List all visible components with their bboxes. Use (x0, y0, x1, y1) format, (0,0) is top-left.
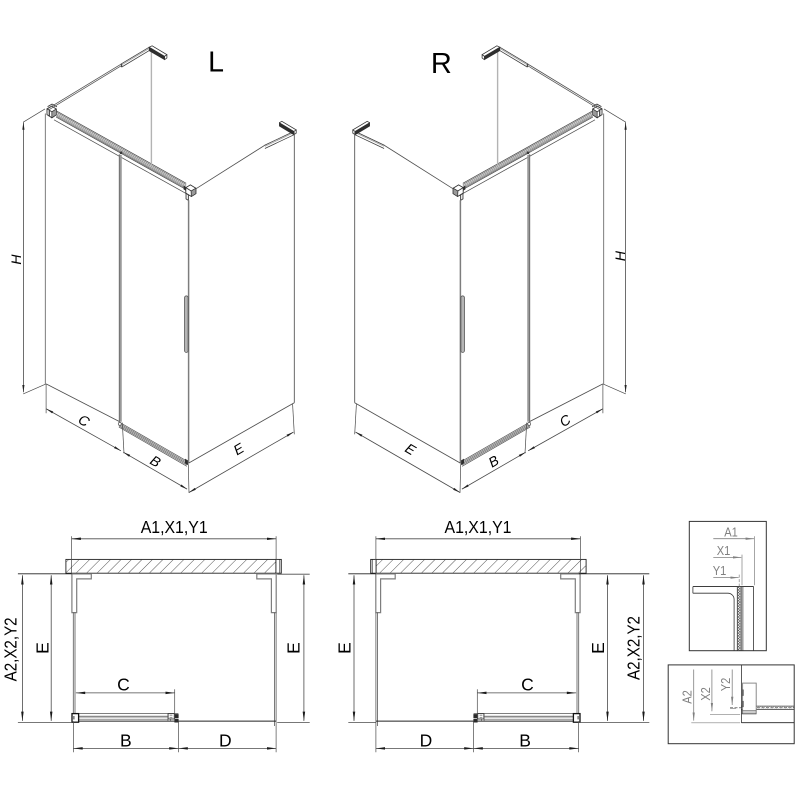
svg-text:C: C (117, 675, 130, 695)
svg-text:X2: X2 (699, 687, 713, 701)
svg-text:A1,X1,Y1: A1,X1,Y1 (445, 517, 512, 537)
svg-text:H: H (612, 250, 628, 261)
svg-text:E: E (284, 642, 304, 654)
svg-text:B: B (519, 731, 531, 751)
svg-text:E: E (32, 642, 52, 654)
svg-text:A2: A2 (681, 690, 695, 704)
svg-text:X1: X1 (717, 544, 731, 558)
svg-text:A1: A1 (724, 526, 738, 540)
svg-text:L: L (208, 47, 224, 79)
svg-text:D: D (219, 731, 232, 751)
svg-text:D: D (420, 731, 433, 751)
svg-text:B: B (120, 731, 132, 751)
svg-text:E: E (588, 642, 608, 654)
svg-text:Y2: Y2 (719, 678, 733, 692)
svg-text:Y1: Y1 (713, 564, 727, 578)
svg-text:A2,X2,Y2: A2,X2,Y2 (623, 616, 643, 680)
svg-text:A2,X2,Y2: A2,X2,Y2 (1, 617, 21, 681)
svg-text:R: R (431, 48, 452, 80)
svg-text:H: H (8, 254, 24, 265)
svg-text:C: C (521, 675, 534, 695)
svg-text:A1,X1,Y1: A1,X1,Y1 (141, 517, 208, 537)
svg-text:E: E (335, 642, 355, 654)
